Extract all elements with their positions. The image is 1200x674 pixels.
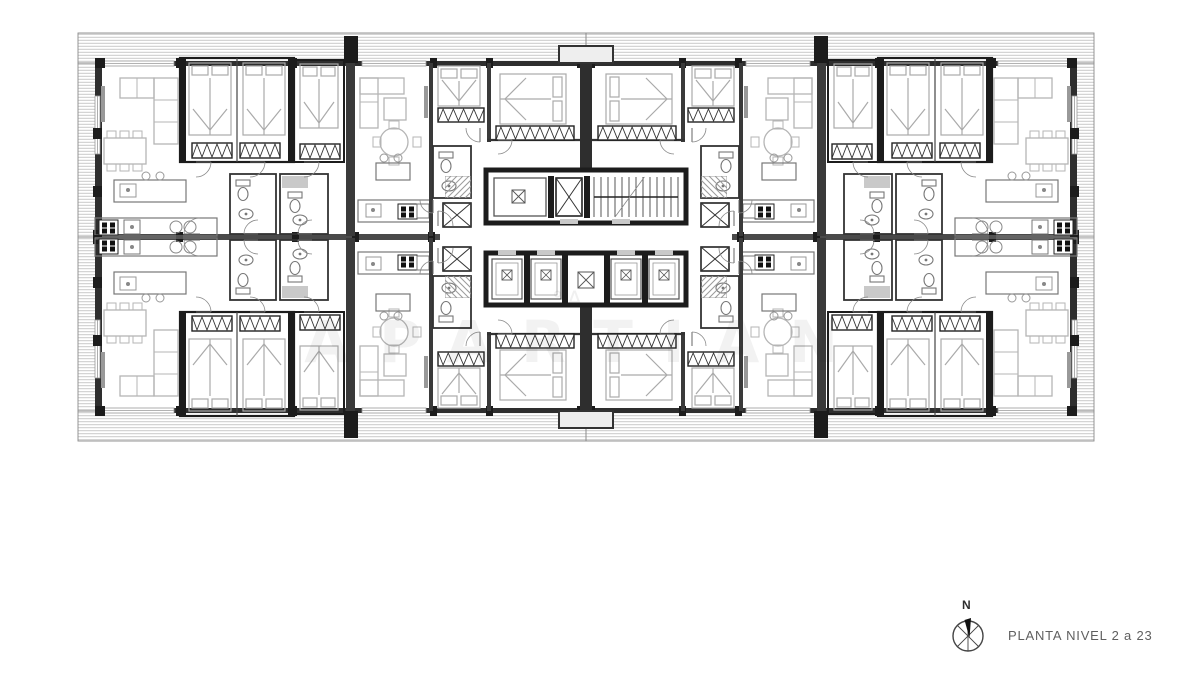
floor-plan-page: APARTIAN °A N PLANTA NIVEL 2 a 23 bbox=[0, 0, 1200, 674]
floor-plan-drawing bbox=[0, 0, 1200, 674]
plan-level-label: PLANTA NIVEL 2 a 23 bbox=[1008, 628, 1153, 643]
watermark-logo: °A bbox=[552, 288, 586, 313]
north-arrow-icon bbox=[946, 610, 990, 654]
title-block: N PLANTA NIVEL 2 a 23 bbox=[938, 598, 1178, 662]
